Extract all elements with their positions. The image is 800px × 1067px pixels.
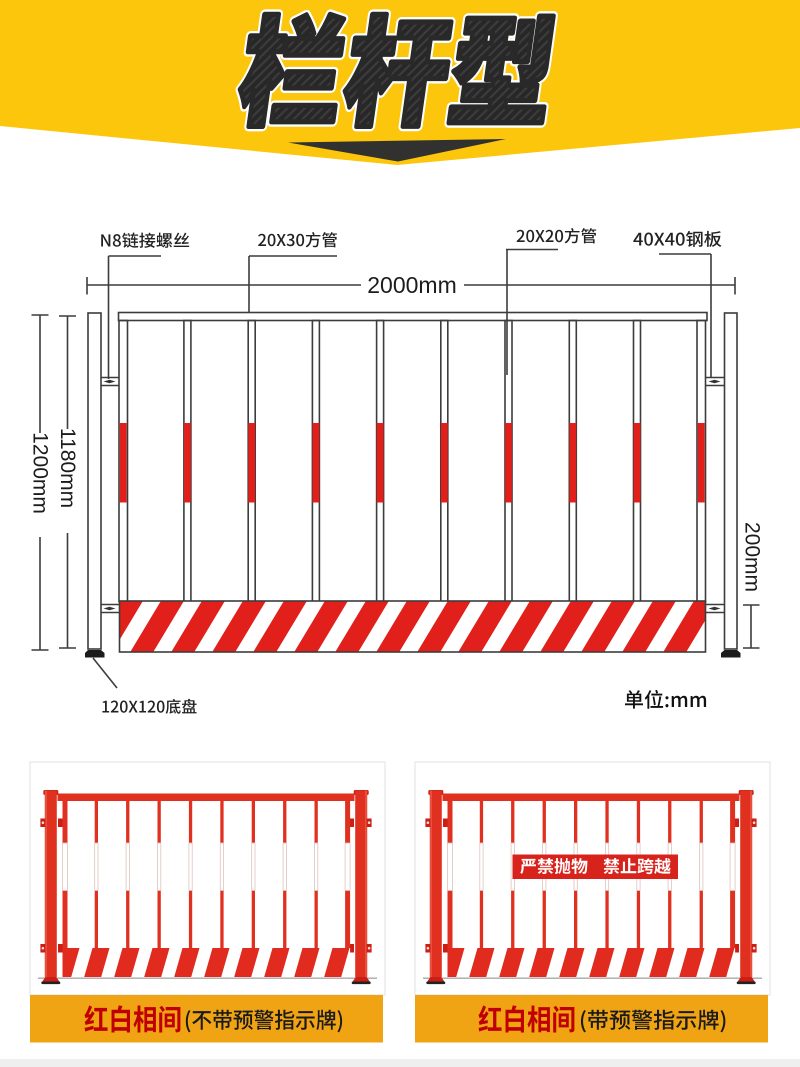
svg-text:1200mm: 1200mm [29,432,52,514]
svg-text:1180mm: 1180mm [56,428,79,508]
svg-text:200mm: 200mm [741,522,764,592]
svg-text:2000mm: 2000mm [367,272,456,298]
